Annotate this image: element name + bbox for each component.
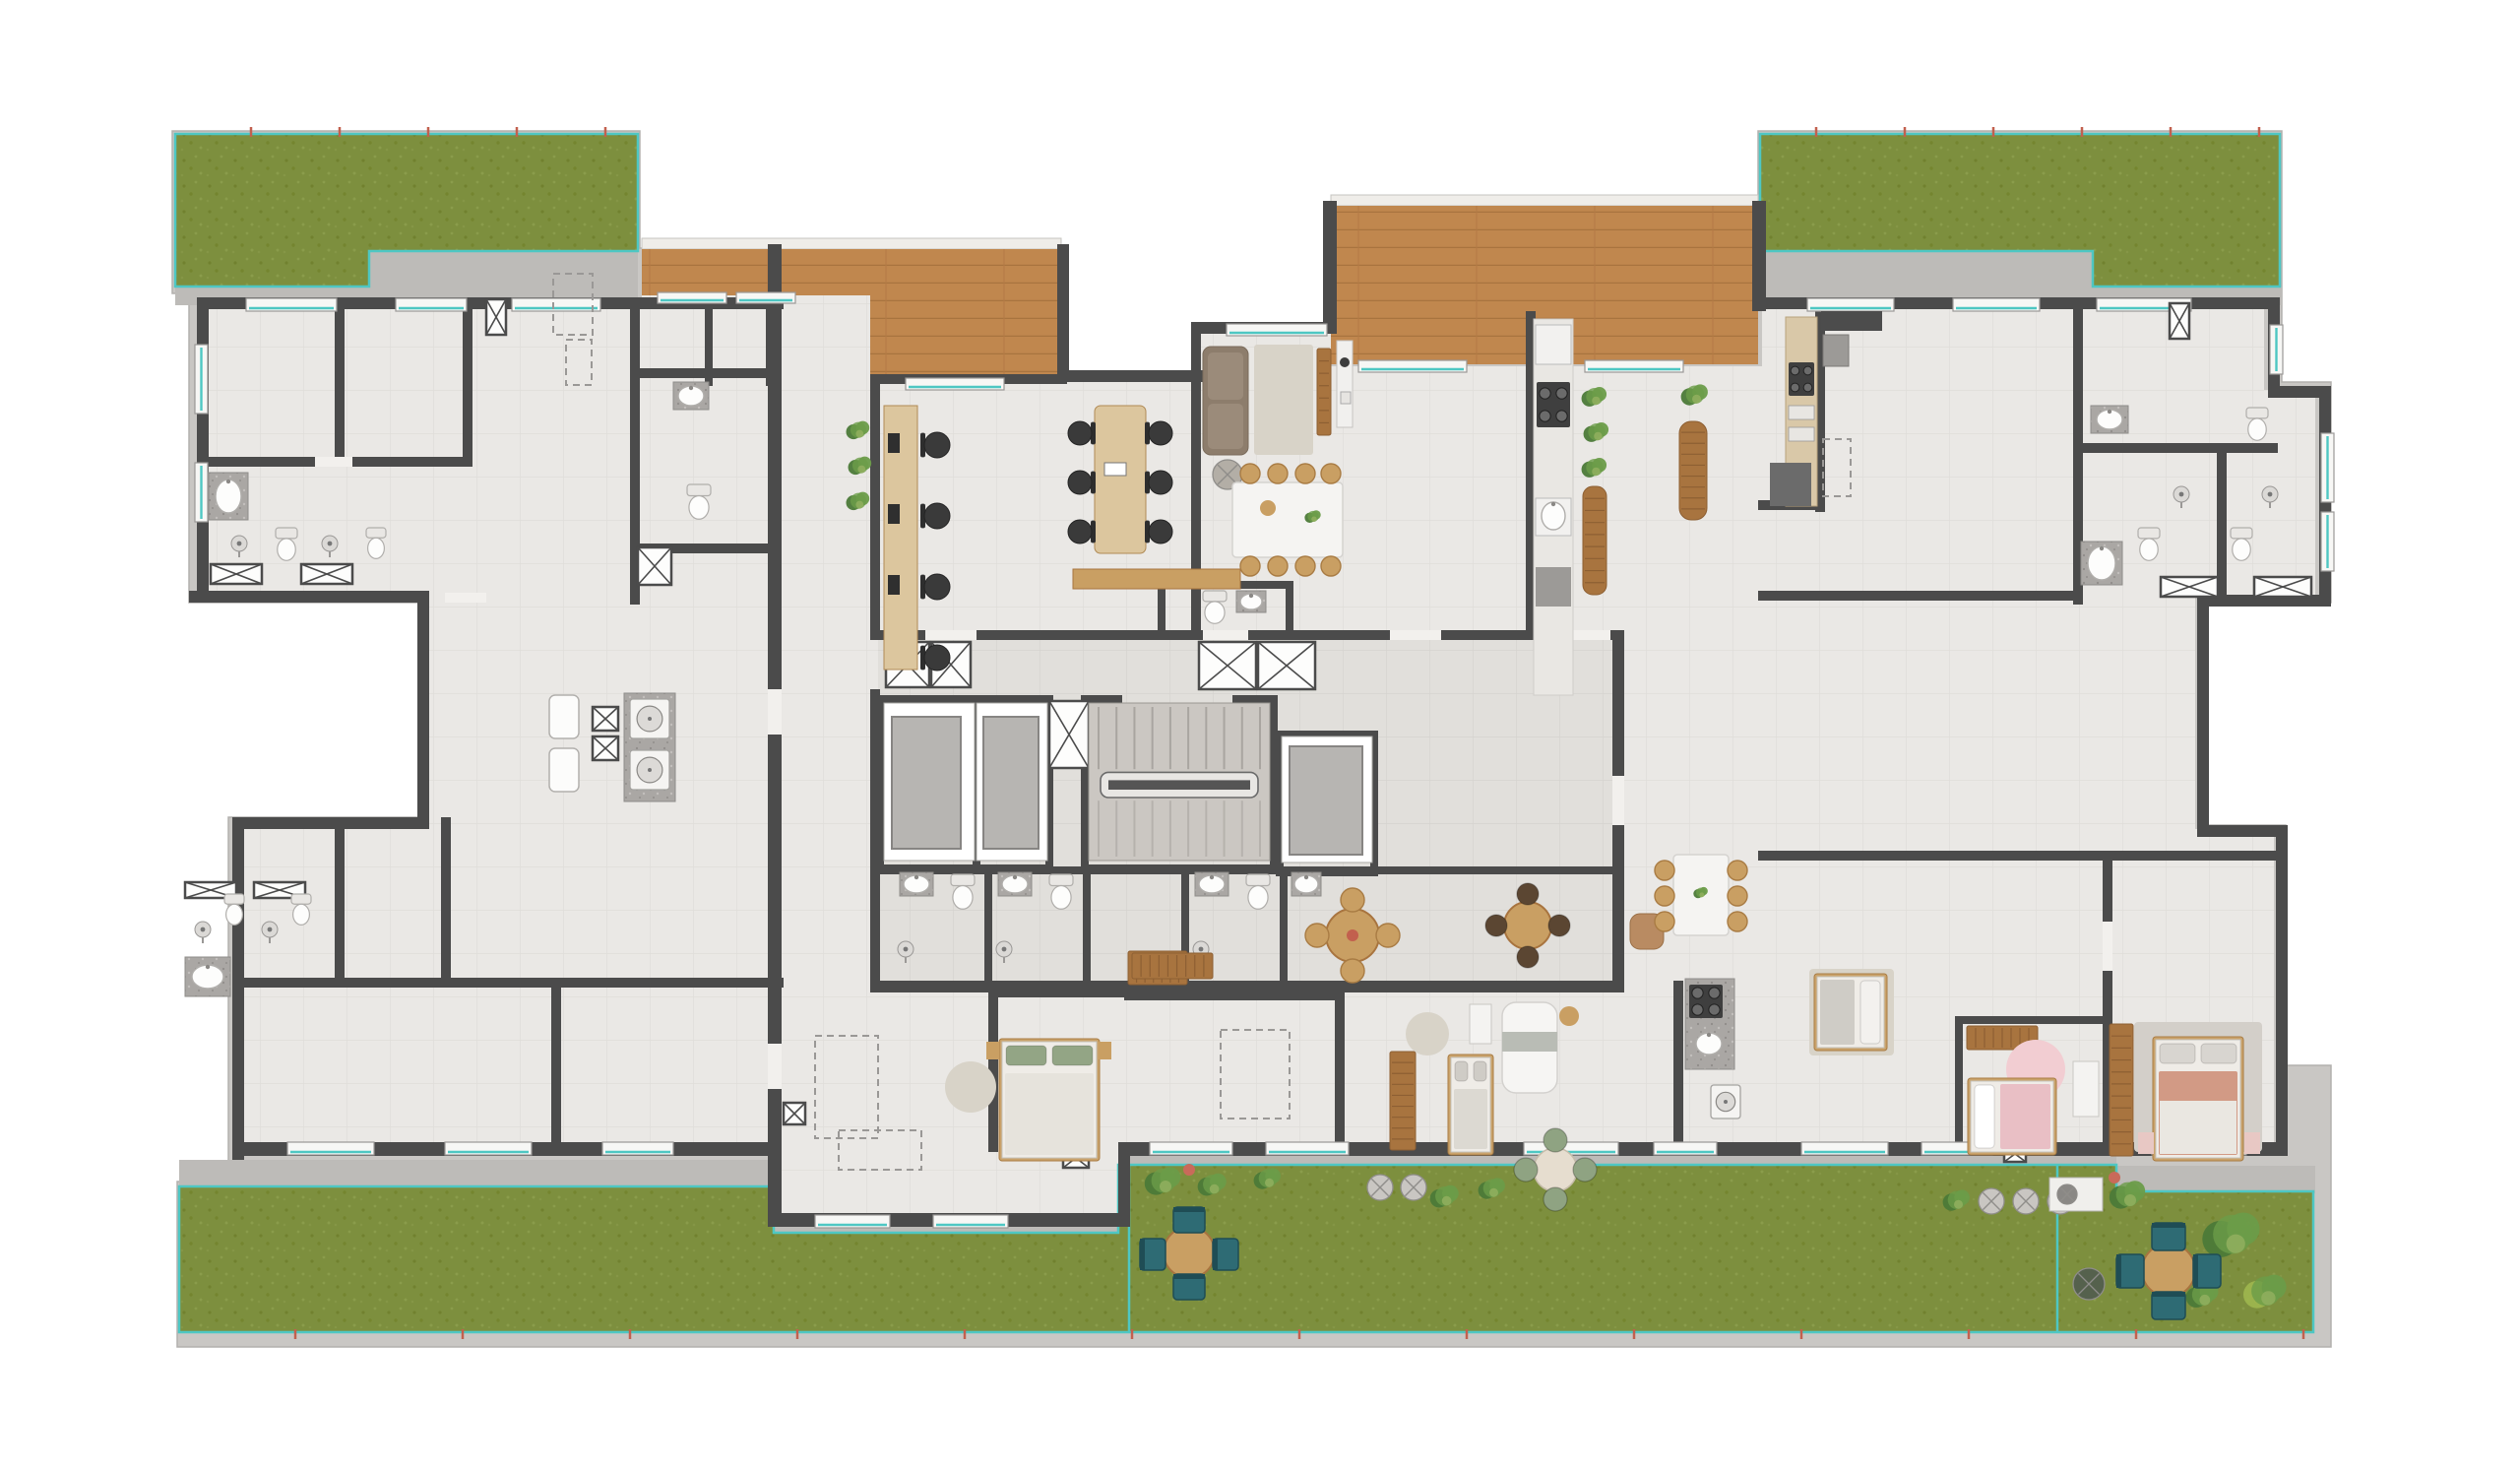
bcB-wardrobe — [1132, 953, 1213, 979]
wall-i-entry2 — [766, 295, 774, 386]
lw-sink-2 — [678, 386, 704, 406]
lw-sink-3 — [192, 965, 223, 989]
window-c-bot-2 — [933, 1215, 1008, 1228]
bc-stool-1 — [1367, 1175, 1393, 1200]
dining-chair-6 — [1268, 556, 1288, 576]
bc-out-chair-2 — [1543, 1187, 1567, 1211]
rw-dining-chair-2 — [1655, 886, 1674, 906]
wall-topbath-l — [1158, 585, 1165, 634]
cafe2-chair-2 — [1517, 946, 1539, 968]
cafe2-chair-3 — [1485, 915, 1507, 936]
window-r-side-1 — [2270, 325, 2283, 374]
wall-rw-bath — [2077, 443, 2278, 453]
meeting-chair-4 — [1145, 421, 1172, 445]
wall-e1-top — [876, 695, 980, 703]
door-master — [2103, 922, 2112, 971]
bc-out-chair-4 — [1573, 1158, 1597, 1182]
wall-notch-top — [189, 591, 429, 603]
wall-i-l7 — [335, 817, 345, 983]
door-corr-2 — [1203, 630, 1248, 640]
bath-toilet-3 — [1246, 874, 1270, 909]
br-table — [2142, 1244, 2195, 1297]
br-chair-1 — [2152, 1223, 2185, 1250]
bcA-rug — [945, 1061, 996, 1113]
br-chair-3 — [2116, 1254, 2144, 1288]
window-l-top-1 — [246, 298, 337, 311]
xbox-c-bot2 — [784, 1103, 805, 1124]
office-chair-4 — [920, 645, 950, 671]
bcB-desk — [1470, 1004, 1491, 1044]
wall-bath-v1 — [984, 870, 992, 983]
wall-bath-v4 — [1280, 870, 1288, 983]
wall-core-bottom — [870, 981, 1624, 992]
deck-rail-right — [1331, 195, 1758, 206]
lounge-rug — [1254, 345, 1313, 455]
bath-toilet-1 — [951, 874, 975, 909]
topbath-sink — [1240, 594, 1262, 609]
window-r-bot-1 — [1801, 1142, 1888, 1155]
elevator-3-car — [1290, 746, 1362, 855]
xbox-shaft-l2 — [301, 564, 352, 584]
office-monitor-3 — [888, 575, 900, 595]
mid-chair-2 — [1173, 1274, 1205, 1300]
wall-i-l1 — [335, 297, 345, 467]
floor-plan-stage — [0, 0, 2520, 1471]
window-entry-1 — [658, 292, 726, 303]
meeting-chair-5 — [1145, 471, 1172, 494]
wall-rw-bed-top — [1758, 851, 2280, 861]
wall-rnotch-bottom — [2197, 825, 2288, 837]
stairwell — [1089, 703, 1270, 861]
meeting-chair-6 — [1145, 520, 1172, 544]
cafe-chair-2 — [1341, 959, 1364, 983]
xbox-shaft-l6 — [486, 299, 506, 335]
office-monitor-2 — [888, 504, 900, 524]
wall-cnotch-bottom-a — [1057, 370, 1207, 382]
wall-c-bottom-step — [1118, 1142, 1130, 1227]
patio-bench-1 — [1583, 486, 1606, 595]
lw-toilet-4 — [224, 894, 244, 925]
cafe-chair-3 — [1305, 924, 1329, 947]
wall-r-right-low — [2276, 1059, 2288, 1154]
xbox-shaft-l1 — [211, 564, 262, 584]
window-l-top-3 — [512, 298, 600, 311]
wall-l-left-lower — [232, 817, 244, 1160]
bcB-wardrobe2 — [1390, 1052, 1416, 1150]
galley-stove — [1789, 362, 1814, 396]
door-left-unit — [768, 689, 782, 735]
wall-office-left — [870, 374, 880, 636]
window-l-side-1 — [195, 345, 208, 414]
dining-chair-7 — [1295, 556, 1315, 576]
window-r-top-2 — [1953, 298, 2040, 311]
dining-bowl — [1260, 500, 1276, 516]
kitchen-sink-bowl — [1542, 502, 1565, 530]
window-deck-door-2 — [1358, 360, 1467, 372]
lounge-island-sink — [1341, 392, 1351, 404]
bath-sink-1 — [904, 875, 929, 893]
walk-band-tr-a — [1760, 251, 2095, 288]
lw-toilet-5 — [291, 894, 311, 925]
mid-chair-4 — [1213, 1239, 1238, 1270]
kitchen-stove — [1537, 382, 1570, 427]
wall-notch-bottom — [232, 817, 429, 829]
walk-band-tl-a — [369, 251, 638, 288]
door-notch — [445, 593, 486, 603]
door-right-unit — [1612, 776, 1624, 825]
galley-app-1 — [1789, 406, 1814, 419]
rw-guest-bed — [1814, 974, 1887, 1051]
lounge-cooktop — [1340, 357, 1350, 367]
bc-sofa-throw — [1502, 1032, 1557, 1052]
bc-out-chair-1 — [1543, 1128, 1567, 1152]
topbath-toilet — [1203, 591, 1227, 623]
wall-e1-left — [876, 695, 884, 872]
door-l-room — [315, 457, 352, 467]
br-pouf — [2073, 1268, 2105, 1300]
wall-bath-v2 — [1083, 870, 1091, 983]
window-c-bot-1 — [815, 1215, 890, 1228]
wall-i-l10 — [551, 978, 561, 1147]
xbox-laundry-1 — [593, 707, 618, 731]
master-wardrobe — [2110, 1024, 2133, 1156]
meeting-chair-3 — [1068, 520, 1096, 544]
galley-cab — [1770, 463, 1811, 506]
wall-rnotch-left — [2197, 595, 2209, 837]
wall-cnotch-right — [1323, 201, 1337, 334]
washer-1 — [630, 699, 669, 738]
lounge-sofa-cushion-1 — [1208, 352, 1243, 400]
window-r-side-2 — [2321, 433, 2334, 502]
window-l-bot-1 — [287, 1142, 374, 1155]
wall-bc-bedB — [1335, 992, 1345, 1150]
bcB-bed — [1448, 1055, 1493, 1155]
window-deck-door-3 — [1585, 360, 1683, 372]
wall-kids-left — [1955, 1016, 1963, 1150]
wall-bc-bedA-top — [988, 990, 1128, 997]
rw-toilet-1 — [2138, 528, 2160, 560]
xbox-stair-side — [1049, 701, 1089, 768]
dining-chair-8 — [1321, 556, 1341, 576]
elevator-2-car — [983, 717, 1039, 849]
window-entry-2 — [736, 292, 795, 303]
cafe2-table — [1504, 902, 1551, 949]
door-corr-3 — [1390, 630, 1441, 640]
bc-sink — [1696, 1033, 1722, 1055]
rw-stool-2 — [2013, 1188, 2039, 1214]
rw-bath-sink — [2097, 410, 2122, 429]
rw-kitchen-counter — [1821, 311, 1882, 331]
cafe-chair-1 — [1341, 888, 1364, 912]
rw-dining-chair-1 — [1655, 861, 1674, 880]
window-l-top-2 — [396, 298, 467, 311]
rw-dining-chair-3 — [1655, 912, 1674, 931]
rw-xbox-1 — [2161, 577, 2218, 597]
wall-r-right-mid — [2276, 825, 2288, 1069]
window-lounge-top — [1227, 324, 1327, 336]
bcA-bed — [999, 1039, 1100, 1161]
cafe2-chair-1 — [1517, 883, 1539, 905]
dining-table — [1232, 482, 1343, 557]
window-cb-1 — [1150, 1142, 1232, 1155]
meeting-credenza — [1073, 569, 1240, 589]
dining-chair-5 — [1240, 556, 1260, 576]
wall-kids-top — [1955, 1016, 2112, 1024]
lw-toilet-2 — [366, 528, 386, 558]
wall-i-l9 — [232, 978, 784, 988]
meeting-chair-2 — [1068, 471, 1096, 494]
walk-band-bottom-left — [179, 1160, 774, 1187]
window-cb-2 — [1266, 1142, 1349, 1155]
window-deck-door-1 — [906, 378, 1004, 390]
rw-fridge — [1823, 335, 1849, 366]
wall-meeting-right — [1191, 322, 1201, 639]
door-corr-1 — [925, 630, 976, 640]
bcB-rug — [1406, 1012, 1449, 1055]
cafe2-chair-4 — [1548, 915, 1570, 936]
lw-sink-1 — [216, 480, 241, 513]
wall-deck-right-end — [1752, 201, 1766, 311]
bcA-nightstand-2 — [1099, 1042, 1111, 1059]
office-chair-2 — [920, 503, 950, 529]
bc-stove — [1689, 985, 1723, 1018]
bath-sink-3 — [1199, 875, 1225, 893]
wall-bc-kitchen — [1673, 981, 1683, 1152]
lounge-tv-bench — [1317, 349, 1331, 435]
wall-e2-top — [973, 695, 1053, 703]
rw-dining-chair-5 — [1728, 886, 1747, 906]
office-chair-3 — [920, 574, 950, 600]
lw-toilet-1 — [276, 528, 297, 560]
dining-chair-2 — [1268, 464, 1288, 483]
wall-cnotch-left — [1057, 244, 1069, 382]
lw-tap-3 — [195, 922, 211, 943]
bath-toilet-2 — [1049, 874, 1073, 909]
office-chair-1 — [920, 432, 950, 458]
wall-bc-bedB-top — [1124, 992, 1343, 1000]
mid-chair-3 — [1140, 1239, 1165, 1270]
floor-left-wing — [203, 303, 772, 1154]
window-r-top-1 — [1807, 298, 1894, 311]
bath-sink-2 — [1002, 875, 1028, 893]
master-sheet — [2160, 1101, 2236, 1154]
master-nightstand-2 — [2244, 1132, 2260, 1154]
mid-table — [1164, 1227, 1215, 1278]
xbox-core-4 — [1258, 642, 1315, 689]
elevator-1-car — [892, 717, 961, 849]
rw-xbox-2 — [2254, 577, 2311, 597]
lounge-island — [1337, 341, 1353, 427]
xbox-r-top — [2170, 303, 2189, 339]
wall-notch-right — [417, 591, 429, 829]
xbox-core-3 — [1199, 642, 1256, 689]
mid-chair-1 — [1173, 1207, 1205, 1233]
meeting-table — [1095, 406, 1146, 553]
meeting-laptop — [1104, 463, 1126, 476]
bath-sink-4 — [1294, 875, 1318, 893]
wall-rw-mid — [1758, 591, 2079, 601]
laundry-sink-2 — [549, 748, 579, 792]
laundry-sink-1 — [549, 695, 579, 738]
floor-plan-canvas — [0, 0, 2520, 1471]
office-monitor-1 — [888, 433, 900, 453]
bc-side-table — [1559, 1006, 1579, 1026]
door-left-unit2 — [768, 1044, 782, 1089]
cafe-chair-4 — [1376, 924, 1400, 947]
washer-2 — [630, 750, 669, 790]
rw-sink — [2088, 546, 2115, 580]
rw-stool-1 — [1979, 1188, 2004, 1214]
dining-chair-4 — [1321, 464, 1341, 483]
br-garden-flower — [2109, 1172, 2120, 1183]
rw-bbq-burner — [2057, 1184, 2077, 1204]
deck-rail-left — [642, 238, 1061, 249]
mid-garden-flower — [1183, 1164, 1195, 1176]
dining-chair-3 — [1295, 464, 1315, 483]
kitchen-fridge — [1536, 325, 1571, 364]
window-l-bot-3 — [602, 1142, 673, 1155]
wall-i-entry1 — [705, 295, 713, 386]
bc-stool-2 — [1401, 1175, 1426, 1200]
window-l-side-2 — [195, 463, 208, 522]
bc-out-table — [1534, 1148, 1577, 1191]
kids-bed — [1968, 1078, 2056, 1155]
rw-bath-toilet — [2246, 408, 2268, 440]
meeting-chair-1 — [1068, 421, 1096, 445]
window-r-side-3 — [2321, 512, 2334, 571]
window-cb-4 — [1654, 1142, 1717, 1155]
rw-dining-chair-4 — [1728, 861, 1747, 880]
rw-toilet-2 — [2231, 528, 2252, 560]
wall-stair-lip2 — [1232, 695, 1278, 703]
xbox-shaft-l5 — [638, 547, 671, 585]
kitchen-cab — [1536, 567, 1571, 607]
br-chair-2 — [2152, 1292, 2185, 1319]
window-l-bot-2 — [445, 1142, 532, 1155]
wall-l-left — [197, 297, 209, 603]
kids-desk — [2073, 1061, 2099, 1117]
wall-i-l3 — [463, 297, 472, 467]
dining-chair-1 — [1240, 464, 1260, 483]
br-chair-4 — [2193, 1254, 2221, 1288]
patio-bench-2 — [1679, 421, 1707, 520]
cafe-deco — [1347, 929, 1358, 941]
wall-topbath-r — [1286, 585, 1293, 634]
galley-app-2 — [1789, 427, 1814, 441]
rw-dining-chair-6 — [1728, 912, 1747, 931]
walk-band-br-corner — [2116, 1166, 2315, 1193]
wall-i-l8 — [441, 817, 451, 983]
lw-toilet-3 — [687, 484, 711, 519]
bc-washer — [1711, 1085, 1740, 1119]
master-nightstand-1 — [2138, 1132, 2154, 1154]
window-cb-3 — [1524, 1142, 1618, 1155]
bc-out-chair-3 — [1514, 1158, 1538, 1182]
lounge-sofa-cushion-2 — [1208, 404, 1243, 449]
bcA-nightstand-1 — [986, 1042, 999, 1059]
xbox-laundry-2 — [593, 736, 618, 760]
